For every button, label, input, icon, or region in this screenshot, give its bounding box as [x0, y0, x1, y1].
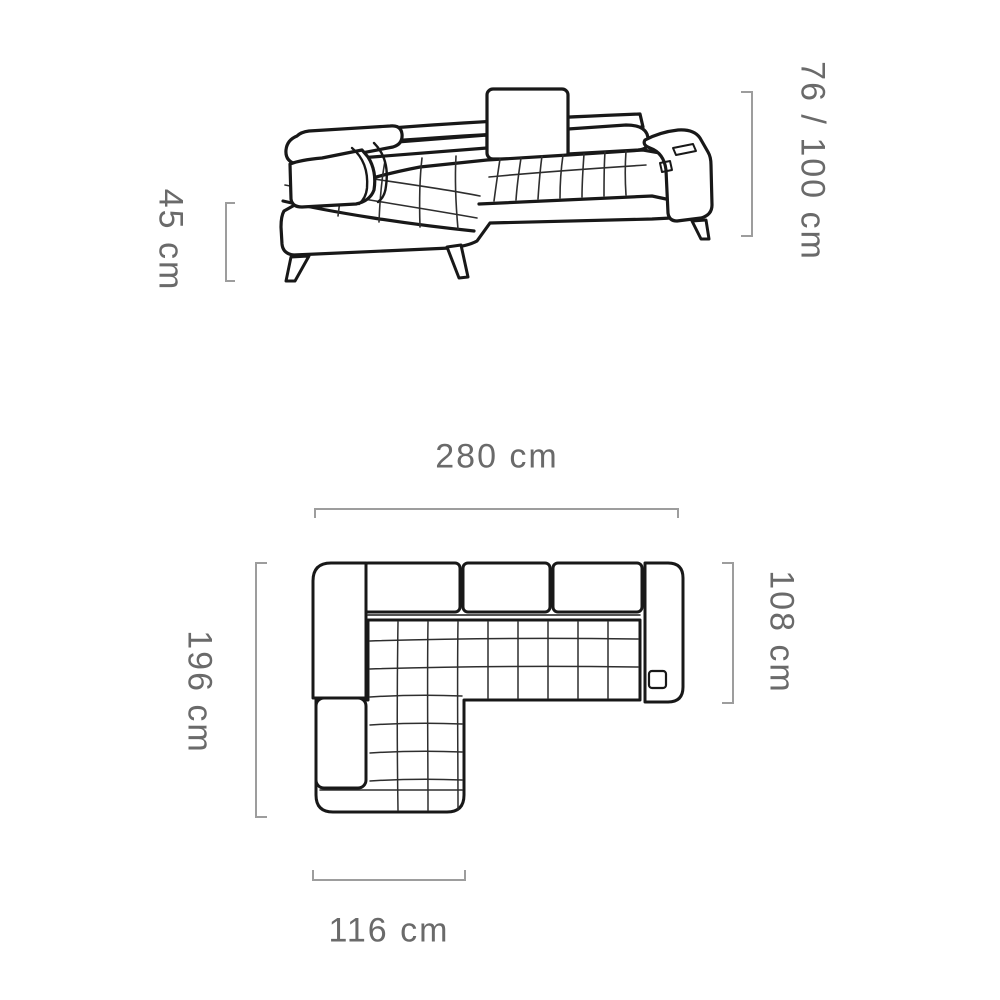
bracket-back-height [742, 92, 752, 236]
dimension-label-chaise-width: 116 cm [329, 912, 450, 951]
plan-view-drawing [313, 563, 683, 812]
dimension-label-seat-height: 45 cm [151, 189, 190, 292]
bracket-total-depth [256, 563, 266, 817]
diagram-canvas [0, 0, 1000, 1000]
dimension-label-total-depth: 196 cm [180, 630, 219, 754]
plan-back-cushion-1 [363, 563, 460, 612]
bracket-right-section-depth [723, 563, 733, 703]
sofa-dimensions-diagram: 45 cm 76 / 100 cm 280 cm 196 cm 108 cm 1… [0, 0, 1000, 1000]
bracket-total-width [315, 509, 678, 517]
sofa-headrest [487, 89, 568, 159]
perspective-view-drawing [281, 89, 712, 281]
plan-armrest-left [313, 563, 366, 698]
plan-back-cushions [363, 563, 642, 612]
sofa-leg-right [692, 220, 709, 239]
dimension-label-right-section-depth: 108 cm [762, 570, 801, 694]
plan-back-cushion-3 [553, 563, 642, 612]
plan-armrest-right [645, 563, 683, 702]
dimension-label-back-height: 76 / 100 cm [793, 61, 832, 261]
plan-back-cushion-2 [463, 563, 550, 612]
sofa-leg-front-left [286, 256, 309, 281]
sofa-leg-front-mid [447, 245, 468, 278]
bracket-chaise-width [313, 871, 465, 880]
plan-chaise-side-cushion [316, 698, 366, 788]
dimension-label-total-width: 280 cm [435, 438, 559, 477]
bracket-seat-height [226, 203, 234, 281]
